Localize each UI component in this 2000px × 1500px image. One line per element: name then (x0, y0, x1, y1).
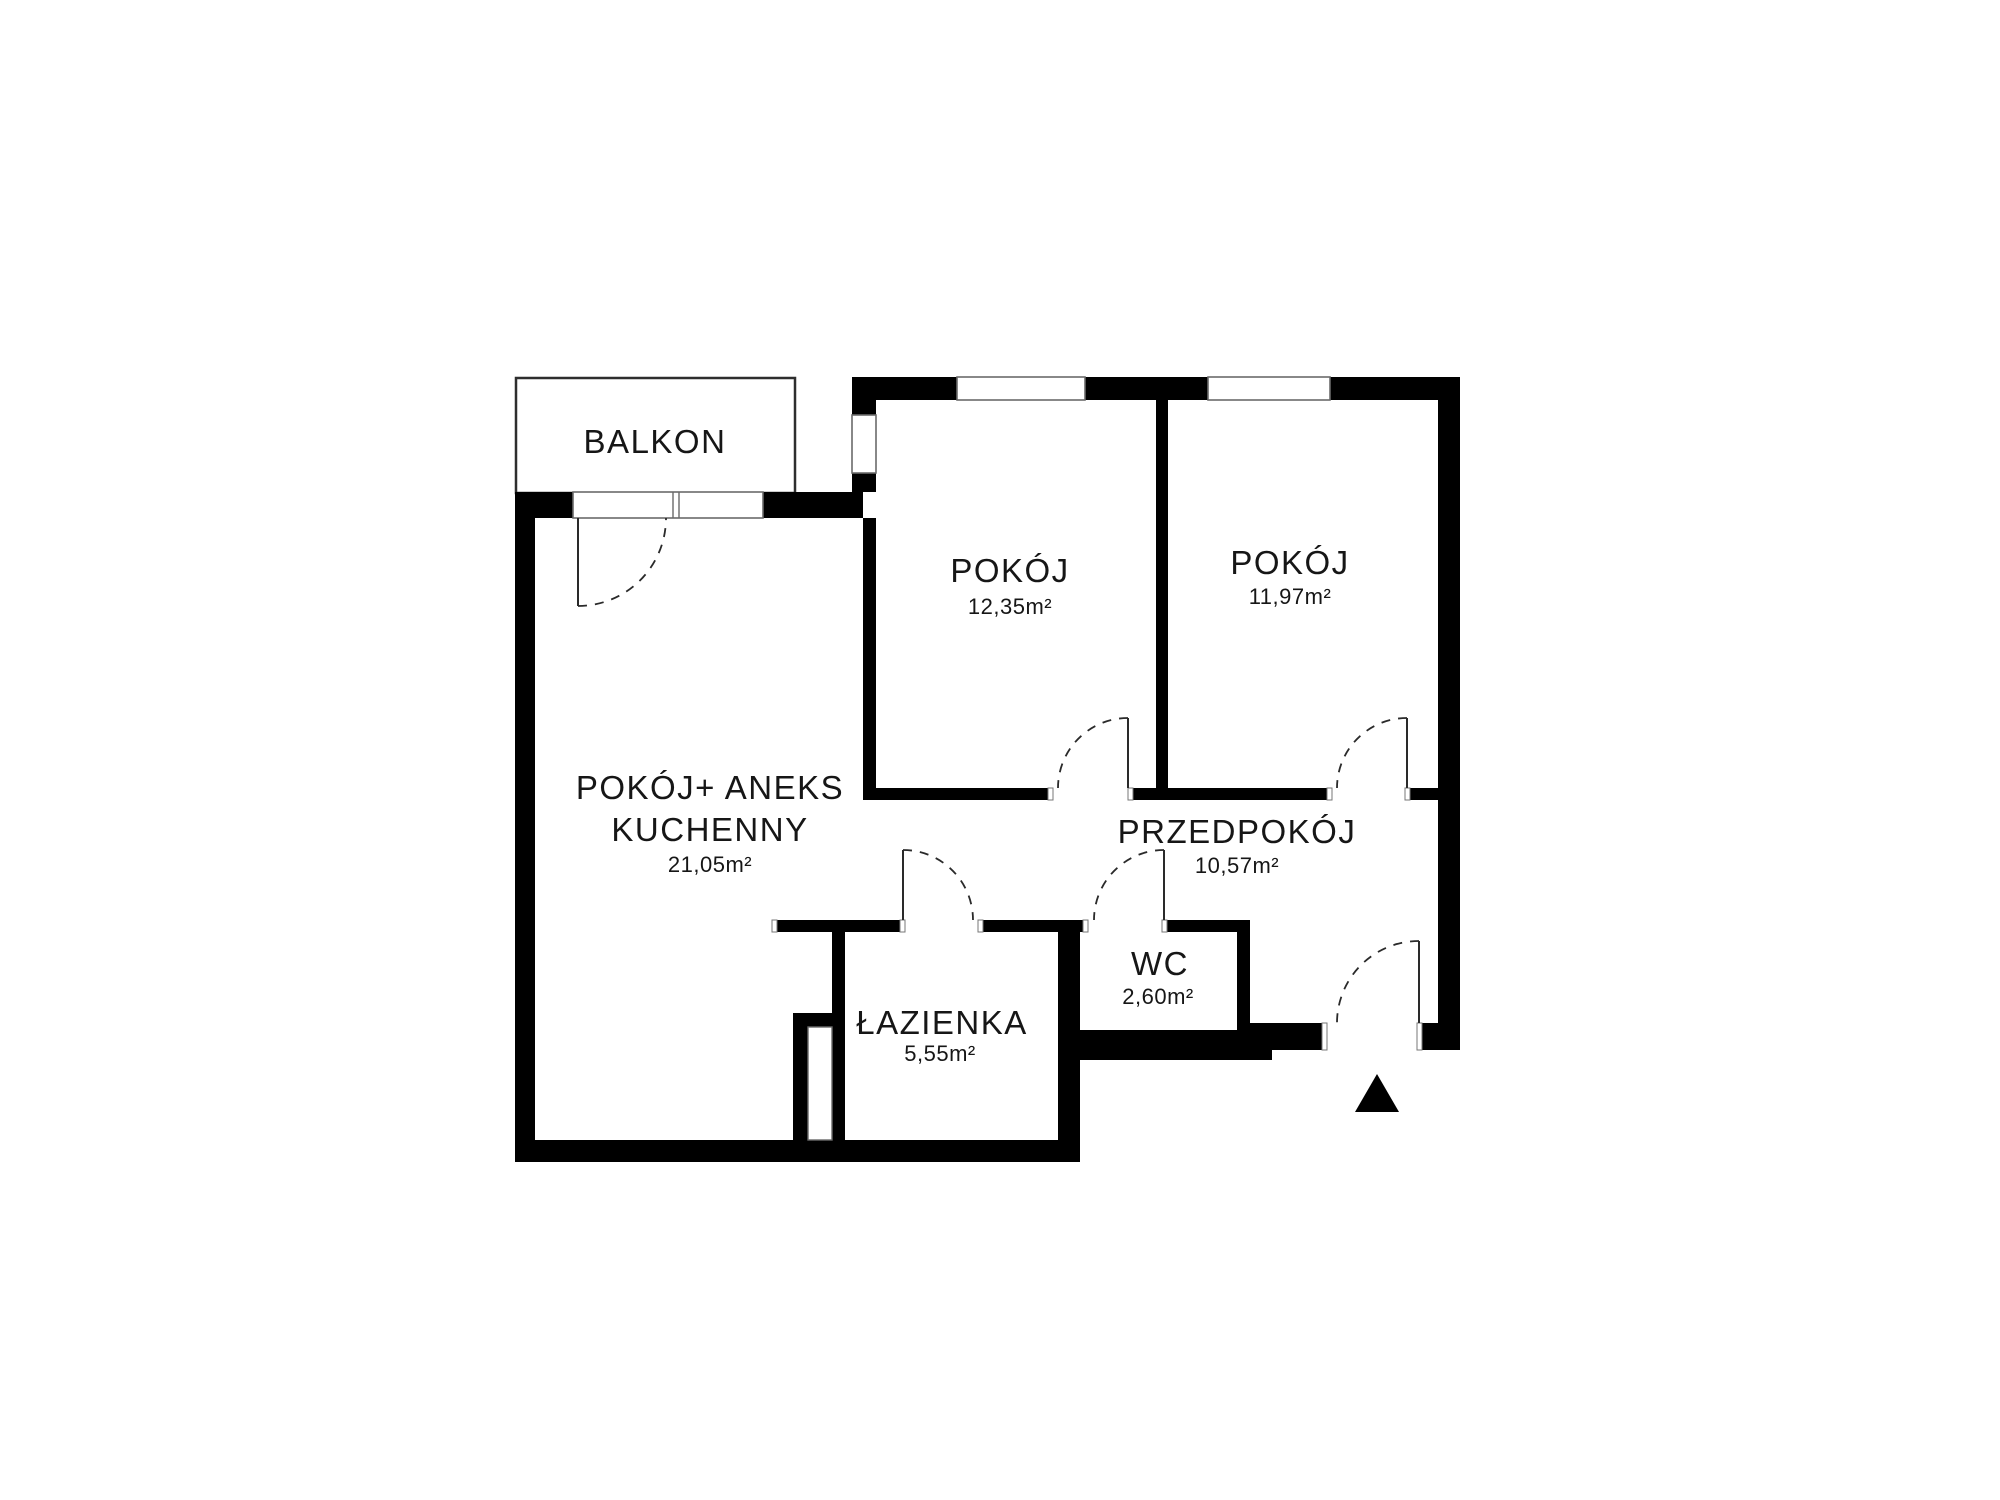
room-area: 2,60m² (1122, 984, 1193, 1009)
floor-plan-page: BALKON (0, 0, 2000, 1500)
wall (1438, 377, 1460, 1050)
room-area: 10,57m² (1195, 853, 1279, 878)
door-jamb (1327, 788, 1332, 800)
door-jamb (1417, 1023, 1422, 1050)
room-1: POKÓJ 12,35m² (950, 552, 1069, 619)
door-arc (1337, 941, 1419, 1023)
wall (777, 920, 900, 932)
room-label: KUCHENNY (611, 811, 808, 848)
room-label: POKÓJ (1230, 544, 1349, 581)
room-area: 11,97m² (1249, 584, 1332, 609)
wall (852, 377, 957, 400)
wall (1058, 1030, 1272, 1060)
wall (852, 473, 876, 492)
room-area: 12,35m² (968, 594, 1052, 619)
duct-slot (808, 1027, 832, 1140)
wall (515, 1140, 1080, 1162)
window (957, 377, 1085, 400)
wall (1250, 1023, 1327, 1050)
wall (763, 492, 863, 518)
door-arc (1337, 718, 1407, 788)
wall (1156, 400, 1168, 788)
wall (1133, 788, 1327, 800)
wall (1410, 788, 1438, 800)
window (852, 415, 876, 473)
door-jamb (1322, 1023, 1327, 1050)
entrance-arrow-icon (1355, 1074, 1399, 1112)
hallway: PRZEDPOKÓJ 10,57m² (1118, 813, 1357, 878)
wall (863, 788, 1048, 800)
living-room: POKÓJ+ ANEKS KUCHENNY 21,05m² (576, 769, 844, 877)
bathroom: ŁAZIENKA 5,55m² (856, 1004, 1028, 1066)
room-label: BALKON (584, 423, 727, 460)
wall (863, 518, 876, 790)
room-label: ŁAZIENKA (856, 1004, 1028, 1041)
room-label: POKÓJ (950, 552, 1069, 589)
room-area: 5,55m² (904, 1041, 975, 1066)
door-jamb (1128, 788, 1133, 800)
room-label: PRZEDPOKÓJ (1118, 813, 1357, 850)
door-arc (1094, 850, 1164, 920)
door-jamb (900, 920, 905, 932)
wall (852, 400, 876, 415)
wall (515, 492, 535, 1162)
wall (983, 920, 1083, 932)
door-jamb (1083, 920, 1088, 932)
room-label: POKÓJ+ ANEKS (576, 769, 844, 806)
wall (1085, 377, 1208, 400)
door-jamb (1405, 788, 1410, 800)
wall (1422, 1023, 1460, 1050)
wc: WC 2,60m² (1122, 945, 1193, 1009)
door-arc (578, 518, 666, 606)
door-jamb (1048, 788, 1053, 800)
door-jamb (772, 920, 777, 932)
window (1208, 377, 1330, 400)
door-arc (903, 850, 973, 920)
floor-plan-svg: BALKON (0, 0, 2000, 1500)
balcony-window (573, 492, 763, 518)
room-area: 21,05m² (668, 852, 752, 877)
door-jamb (1162, 920, 1167, 932)
room-2: POKÓJ 11,97m² (1230, 544, 1349, 609)
door-arc (1058, 718, 1128, 788)
balcony: BALKON (516, 378, 795, 493)
door-jamb (978, 920, 983, 932)
room-label: WC (1131, 945, 1189, 982)
